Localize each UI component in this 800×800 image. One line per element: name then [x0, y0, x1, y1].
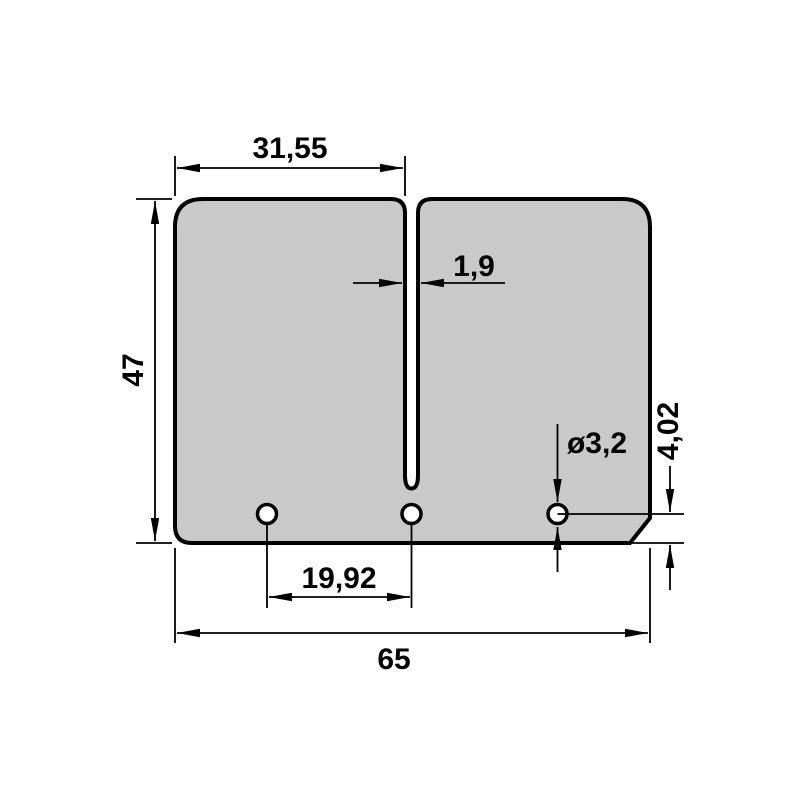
dimension-total-width: 65 — [175, 548, 650, 676]
dimension-label-hole-spacing: 19,92 — [301, 562, 376, 595]
dimension-label-hole-offset: 4,02 — [652, 402, 685, 460]
reed-plate-outline — [175, 199, 650, 543]
dimension-drawing: 31,55 1,9 47 ø3,2 4,02 — [0, 0, 800, 800]
dimension-label-height: 47 — [117, 353, 150, 386]
dimension-height: 47 — [117, 199, 172, 543]
hole-middle — [402, 505, 421, 524]
dimension-label-slot-width: 1,9 — [453, 250, 495, 283]
dimension-label-top-width: 31,55 — [252, 132, 327, 165]
dimension-label-hole-diameter: ø3,2 — [567, 427, 627, 460]
dimension-label-total-width: 65 — [377, 643, 410, 676]
technical-drawing-canvas: 31,55 1,9 47 ø3,2 4,02 — [0, 0, 800, 800]
hole-left — [258, 505, 277, 524]
dimension-top-width: 31,55 — [175, 132, 405, 196]
